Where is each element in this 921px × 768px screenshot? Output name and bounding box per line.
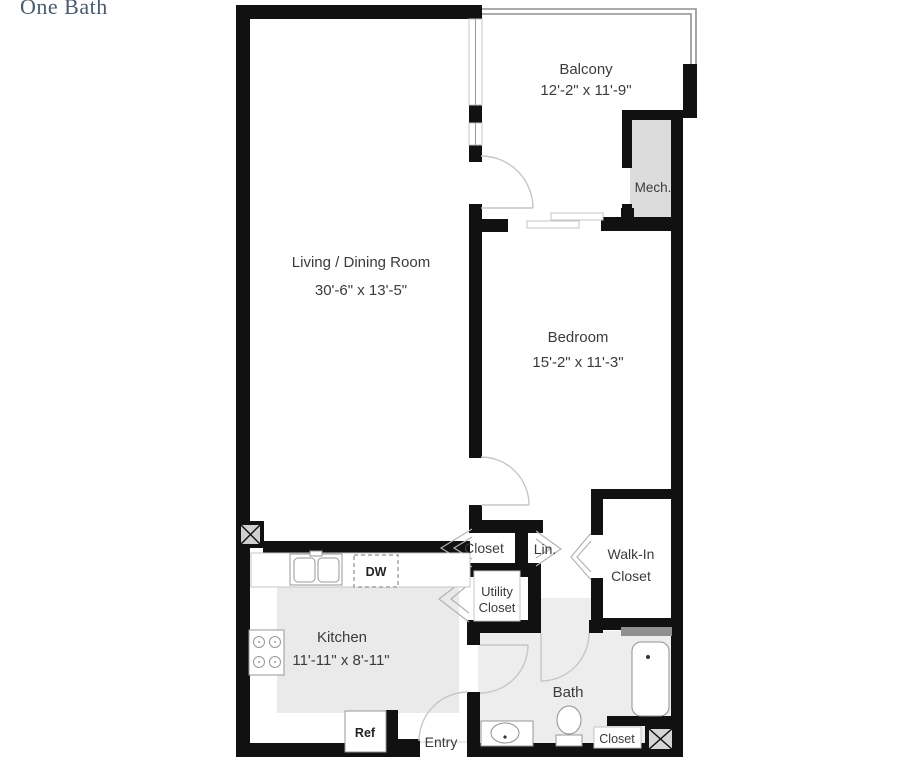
- wall-segment: [622, 110, 632, 168]
- wall-segment: [469, 219, 508, 232]
- wall-segment: [591, 498, 603, 535]
- wall-segment: [601, 217, 683, 231]
- floor-plan-drawing: DW Ref: [0, 0, 921, 768]
- wall-segment: [469, 204, 482, 458]
- wall-segment: [621, 208, 634, 218]
- bath-label: Bath: [553, 684, 584, 701]
- dishwasher-label: DW: [366, 565, 387, 579]
- walkin-closet-label-1: Walk-In: [608, 546, 655, 562]
- page-title: One Bath: [20, 0, 108, 20]
- wall-vent-bar: [621, 627, 672, 636]
- dishwasher-icon: DW: [354, 555, 398, 587]
- balcony-label: Balcony: [559, 61, 613, 78]
- wall-segment: [236, 5, 250, 757]
- walkin-closet-label-2: Closet: [611, 568, 651, 584]
- wall-segment: [263, 541, 470, 553]
- wall-segment: [467, 692, 480, 743]
- toilet-icon: [556, 706, 582, 746]
- shaft-icon: [647, 727, 674, 751]
- utility-closet-label-1: Utility: [481, 584, 513, 599]
- windows: [469, 19, 482, 145]
- wall-segment: [398, 739, 420, 752]
- bedroom-label: Bedroom: [548, 329, 609, 346]
- wall-segment: [236, 5, 482, 19]
- balcony-railing: [482, 9, 696, 64]
- kitchen-label: Kitchen: [317, 629, 367, 646]
- walkin-bifold-icon: [571, 533, 591, 580]
- column-icon: [239, 523, 262, 546]
- entry-label: Entry: [425, 734, 458, 750]
- wall-segment: [469, 105, 482, 123]
- living-room-dims: 30'-6" x 13'-5": [315, 282, 407, 299]
- hall-floor: [541, 598, 591, 632]
- linen-closet-label: Lin.: [534, 541, 557, 557]
- mech-floor: [630, 117, 673, 219]
- kitchen-floor: [277, 587, 459, 713]
- wall-segment: [469, 520, 543, 533]
- refrigerator-icon: Ref: [345, 711, 386, 752]
- wall-segment: [469, 145, 482, 162]
- wall-segment: [386, 710, 398, 757]
- sink-icon: [290, 551, 342, 585]
- wall-segment: [671, 110, 683, 230]
- balcony-dims: 12'-2" x 11'-9": [540, 82, 631, 99]
- bathroom-sink-icon: [481, 721, 533, 746]
- mech-room-label: Mech.: [635, 180, 672, 195]
- wall-segment: [683, 64, 697, 118]
- refrigerator-label: Ref: [355, 726, 376, 740]
- wall-segment: [467, 633, 480, 645]
- bedroom-door-icon: [481, 457, 529, 505]
- living-room-label: Living / Dining Room: [292, 254, 430, 271]
- wall-segment: [467, 620, 541, 633]
- bedroom-dims: 15'-2" x 11'-3": [532, 354, 623, 371]
- floor-plan-page: One Bath: [0, 0, 921, 768]
- bath-closet-label: Closet: [599, 732, 635, 746]
- stove-icon: [249, 630, 284, 675]
- sliding-door-icon: [527, 213, 603, 228]
- wall-segment: [607, 716, 672, 726]
- wall-segment: [591, 489, 683, 499]
- kitchen-dims: 11'-11" x 8'-11": [292, 652, 389, 669]
- bathtub-icon: [632, 642, 669, 716]
- balcony-door-icon: [481, 156, 533, 208]
- utility-closet-label-2: Closet: [479, 600, 516, 615]
- closet-label: Closet: [464, 540, 504, 556]
- wall-segment: [591, 578, 603, 622]
